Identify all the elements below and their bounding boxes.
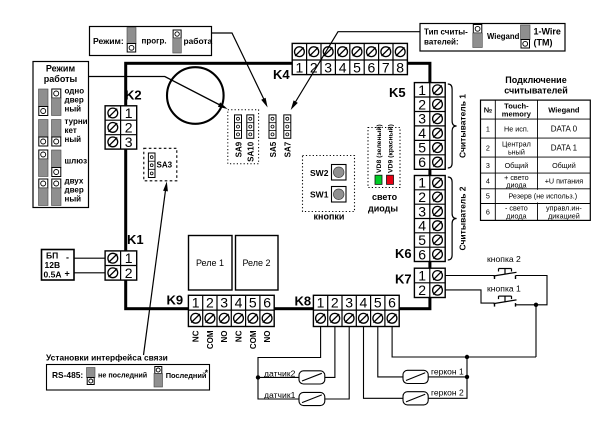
svg-text:5: 5 bbox=[353, 59, 361, 75]
svg-text:2: 2 bbox=[206, 295, 214, 311]
svg-text:Считыватель 2: Считыватель 2 bbox=[458, 186, 468, 250]
svg-text:диоды: диоды bbox=[368, 204, 398, 214]
svg-text:2: 2 bbox=[125, 265, 133, 281]
svg-text:Установки интерфейса связи: Установки интерфейса связи bbox=[46, 353, 168, 363]
svg-text:свето: свето bbox=[372, 192, 398, 202]
svg-text:5: 5 bbox=[374, 295, 382, 311]
svg-text:4: 4 bbox=[235, 295, 243, 311]
svg-text:2: 2 bbox=[486, 144, 490, 153]
svg-text:SW2: SW2 bbox=[310, 168, 329, 178]
svg-text:NO: NO bbox=[220, 331, 229, 343]
svg-text:кнопка 2: кнопка 2 bbox=[487, 254, 521, 264]
svg-text:6: 6 bbox=[418, 246, 426, 262]
svg-text:3: 3 bbox=[220, 295, 228, 311]
svg-text:Wiegand: Wiegand bbox=[487, 32, 520, 41]
svg-text:Режим: Режим bbox=[46, 64, 76, 74]
svg-text:DATA 1: DATA 1 bbox=[551, 144, 578, 153]
svg-text:K8: K8 bbox=[295, 294, 312, 309]
svg-text:K4: K4 bbox=[273, 67, 290, 82]
svg-text:1: 1 bbox=[192, 295, 200, 311]
svg-text:одно: одно bbox=[65, 87, 85, 96]
svg-text:диода: диода bbox=[506, 181, 526, 190]
svg-text:БП: БП bbox=[46, 251, 58, 261]
svg-text:SA10: SA10 bbox=[247, 141, 256, 162]
svg-text:K2: K2 bbox=[125, 88, 142, 103]
svg-text:7: 7 bbox=[382, 59, 390, 75]
svg-text:Wiegand: Wiegand bbox=[548, 106, 580, 115]
svg-text:№: № bbox=[484, 106, 492, 115]
svg-text:SA3: SA3 bbox=[157, 161, 173, 170]
svg-text:3: 3 bbox=[125, 134, 133, 150]
svg-text:кнопки: кнопки bbox=[314, 212, 345, 222]
svg-text:ный: ный bbox=[65, 105, 82, 114]
svg-text:турни: турни bbox=[65, 117, 88, 126]
svg-text:K1: K1 bbox=[127, 232, 144, 247]
svg-text:датчик2: датчик2 bbox=[264, 369, 296, 379]
svg-text:3: 3 bbox=[345, 295, 353, 311]
svg-text:Не исп.: Не исп. bbox=[504, 125, 529, 134]
svg-text:работы: работы bbox=[44, 74, 78, 84]
svg-text:6: 6 bbox=[388, 295, 396, 311]
svg-text:(ТМ): (ТМ) bbox=[534, 38, 553, 48]
svg-text:1: 1 bbox=[418, 268, 426, 284]
svg-text:NO: NO bbox=[263, 331, 272, 343]
svg-text:геркон 2: геркон 2 bbox=[431, 388, 464, 398]
svg-text:SA9: SA9 bbox=[234, 141, 243, 157]
svg-text:1: 1 bbox=[125, 250, 133, 266]
svg-text:двер: двер bbox=[65, 96, 84, 105]
svg-text:SW1: SW1 bbox=[310, 190, 329, 200]
svg-text:работа: работа bbox=[184, 36, 213, 46]
svg-text:8: 8 bbox=[396, 59, 404, 75]
svg-text:двух: двух bbox=[65, 177, 84, 186]
svg-text:COM: COM bbox=[249, 330, 258, 349]
svg-text:ный: ный bbox=[65, 195, 82, 204]
svg-text:0.5А: 0.5А bbox=[44, 270, 62, 280]
svg-text:memory: memory bbox=[502, 110, 532, 119]
svg-text:5: 5 bbox=[486, 192, 490, 201]
svg-text:Реле 2: Реле 2 bbox=[242, 258, 270, 268]
svg-text:Считыватель 1: Считыватель 1 bbox=[458, 94, 468, 158]
svg-text:двер: двер bbox=[65, 186, 84, 195]
svg-text:Общий: Общий bbox=[552, 161, 576, 170]
svg-text:NC: NC bbox=[192, 330, 201, 342]
svg-text:1: 1 bbox=[317, 295, 325, 311]
svg-text:K9: K9 bbox=[167, 293, 184, 308]
svg-text:+U питания: +U питания bbox=[545, 177, 583, 186]
svg-text:геркон 1: геркон 1 bbox=[431, 366, 464, 376]
svg-text:4: 4 bbox=[360, 295, 368, 311]
svg-text:SA7: SA7 bbox=[284, 141, 293, 157]
svg-text:Резерв (не использ.): Резерв (не использ.) bbox=[508, 192, 577, 201]
svg-text:1: 1 bbox=[486, 125, 490, 134]
svg-text:COM: COM bbox=[206, 330, 215, 349]
svg-text:Подключение: Подключение bbox=[505, 75, 566, 85]
svg-text:K5: K5 bbox=[389, 85, 406, 100]
svg-text:SA5: SA5 bbox=[269, 141, 278, 157]
svg-text:Общий: Общий bbox=[505, 161, 529, 170]
svg-text:не последний: не последний bbox=[98, 371, 147, 380]
svg-text:кнопка 1: кнопка 1 bbox=[487, 284, 521, 294]
svg-text:6: 6 bbox=[368, 59, 376, 75]
svg-text:Последний: Последний bbox=[166, 371, 207, 380]
svg-text:считывателей: считывателей bbox=[504, 86, 568, 96]
svg-text:ный: ный bbox=[65, 135, 82, 144]
svg-text:K6: K6 bbox=[395, 246, 412, 261]
svg-text:DATA 0: DATA 0 bbox=[551, 125, 578, 134]
svg-text:NC: NC bbox=[235, 330, 244, 342]
svg-text:6: 6 bbox=[486, 208, 490, 217]
svg-text:ьный: ьный bbox=[508, 148, 525, 157]
svg-text:диода: диода bbox=[506, 212, 526, 221]
svg-text:12В: 12В bbox=[45, 260, 61, 270]
svg-text:вателей:: вателей: bbox=[424, 38, 459, 47]
svg-text:K7: K7 bbox=[395, 272, 412, 287]
svg-text:2: 2 bbox=[331, 295, 339, 311]
svg-text:Реле 1: Реле 1 bbox=[196, 258, 224, 268]
svg-text:кет: кет bbox=[65, 126, 77, 135]
svg-text:+: + bbox=[65, 269, 70, 279]
svg-text:1-Wire: 1-Wire bbox=[534, 27, 561, 37]
svg-text:4: 4 bbox=[339, 59, 347, 75]
svg-text:RS-485:: RS-485: bbox=[52, 370, 83, 380]
svg-text:VD8 (зеленый): VD8 (зеленый) bbox=[375, 124, 383, 173]
svg-text:-: - bbox=[66, 253, 69, 263]
svg-text:3: 3 bbox=[486, 161, 490, 170]
svg-text:шлюз: шлюз bbox=[65, 157, 88, 166]
svg-text:3: 3 bbox=[324, 59, 332, 75]
svg-text:Режим:: Режим: bbox=[93, 36, 124, 46]
svg-text:VD9 (красный): VD9 (красный) bbox=[387, 124, 395, 173]
svg-text:5: 5 bbox=[249, 295, 257, 311]
svg-text:6: 6 bbox=[263, 295, 271, 311]
svg-text:дикацией: дикацией bbox=[548, 212, 580, 221]
svg-text:прогр.: прогр. bbox=[142, 37, 167, 46]
svg-text:2: 2 bbox=[418, 282, 426, 298]
svg-text:4: 4 bbox=[486, 177, 490, 186]
svg-text:датчик1: датчик1 bbox=[264, 390, 296, 400]
svg-text:Тип считы-: Тип считы- bbox=[424, 28, 468, 37]
svg-text:1: 1 bbox=[296, 59, 304, 75]
svg-text:6: 6 bbox=[418, 154, 426, 170]
